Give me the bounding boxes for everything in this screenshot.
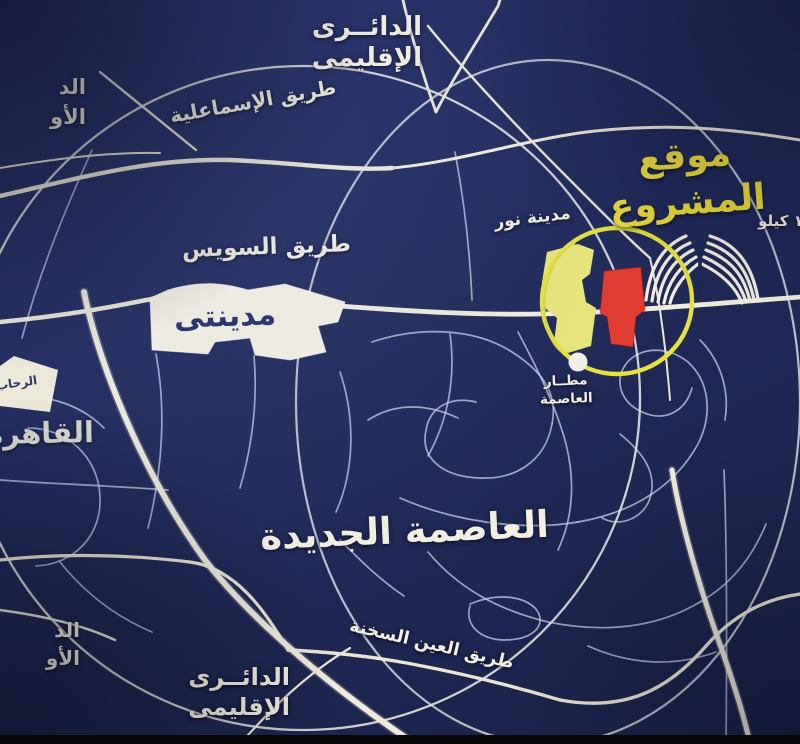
label-capital-airport: مطــار العاصمة — [523, 371, 608, 410]
map-canvas: الدائــرى الإقليمى الد الأو طريق الإسماع… — [0, 0, 800, 744]
label-ring-edge-bottom-left-line2: الأو — [0, 644, 80, 672]
label-capital-airport-line2: العاصمة — [524, 389, 609, 410]
label-ring-edge-top-left: الد الأو — [0, 72, 86, 133]
label-regional-ring-bottom-line2: الإقليمى — [142, 692, 290, 722]
label-regional-ring-top: الدائــرى الإقليمى — [280, 12, 422, 74]
label-distance-kilo: ١٢ كيلو — [730, 212, 800, 230]
label-ring-edge-top-left-line2: الأو — [0, 102, 86, 132]
label-regional-ring-top-line1: الدائــرى — [280, 12, 422, 43]
label-ring-edge-bottom-left-line1: الد — [0, 616, 80, 644]
label-ring-edge-top-left-line1: الد — [0, 72, 86, 102]
label-ring-edge-bottom-left: الد الأو — [0, 616, 80, 672]
label-cairo: القاهرة — [0, 415, 94, 452]
minor-roads — [0, 150, 766, 744]
airport-dot — [569, 353, 588, 372]
label-suez-road: طريق السويس — [182, 231, 352, 264]
label-regional-ring-top-line2: الإقليمى — [280, 43, 422, 74]
label-regional-ring-bottom-line1: الدائــرى — [142, 662, 290, 692]
label-regional-ring-bottom: الدائــرى الإقليمى — [142, 662, 290, 722]
project-marker — [600, 267, 645, 347]
label-madinaty: مدينتى — [173, 297, 276, 337]
bottom-black-bar — [0, 735, 800, 744]
